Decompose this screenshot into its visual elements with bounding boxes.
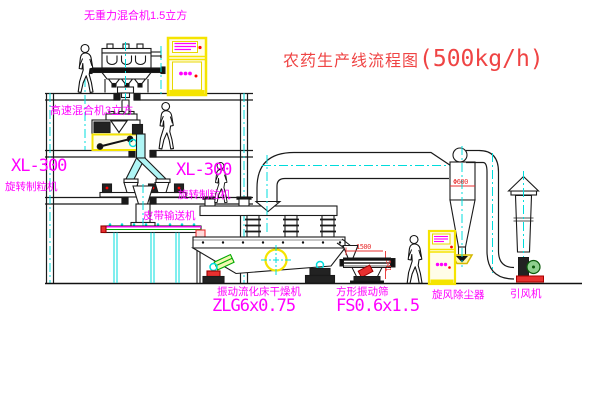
worker-floor2	[159, 102, 173, 148]
label-dryer-model: ZLG6x0.75	[212, 298, 295, 315]
label-zero-gravity-mixer: 无重力混合机1.5立方	[84, 11, 187, 22]
title-capacity: (500kg/h)	[419, 46, 544, 72]
dim-sieve-height: 541	[384, 260, 391, 271]
induced-draft-fan	[517, 258, 544, 283]
worker-sieve	[407, 236, 422, 284]
pesticide-line-flow-diagram: 农药生产线流程图 (500kg/h) 无重力混合机1.5立方 高速混合机3立方 …	[0, 0, 600, 403]
label-granulator-left-name: 旋转制粒机	[5, 182, 58, 193]
label-fan: 引风机	[510, 289, 542, 300]
title-chinese: 农药生产线流程图	[283, 47, 419, 71]
zero-gravity-mixer	[88, 42, 165, 100]
label-cyclone: 旋风除尘器	[432, 290, 485, 301]
dim-sieve-length: 1500	[356, 244, 371, 251]
label-high-speed-mixer: 高速混合机3立方	[50, 106, 133, 117]
label-granulator-left-model: XL-300	[11, 158, 66, 175]
label-belt-conveyor: 皮带输送机	[143, 211, 196, 222]
diagram-title: 农药生产线流程图 (500kg/h)	[283, 46, 544, 72]
label-sieve-model: FS0.6x1.5	[336, 298, 419, 315]
worker-roof	[78, 45, 93, 93]
label-granulator-center-model: XL-300	[176, 162, 231, 179]
fluid-bed-dryer	[193, 197, 358, 283]
control-cabinet-top	[168, 38, 206, 95]
label-granulator-center-name: 旋转制粒机	[178, 190, 231, 201]
control-cabinet-cyclone	[429, 231, 455, 284]
dim-cyclone-diameter: Φ600	[453, 179, 468, 186]
